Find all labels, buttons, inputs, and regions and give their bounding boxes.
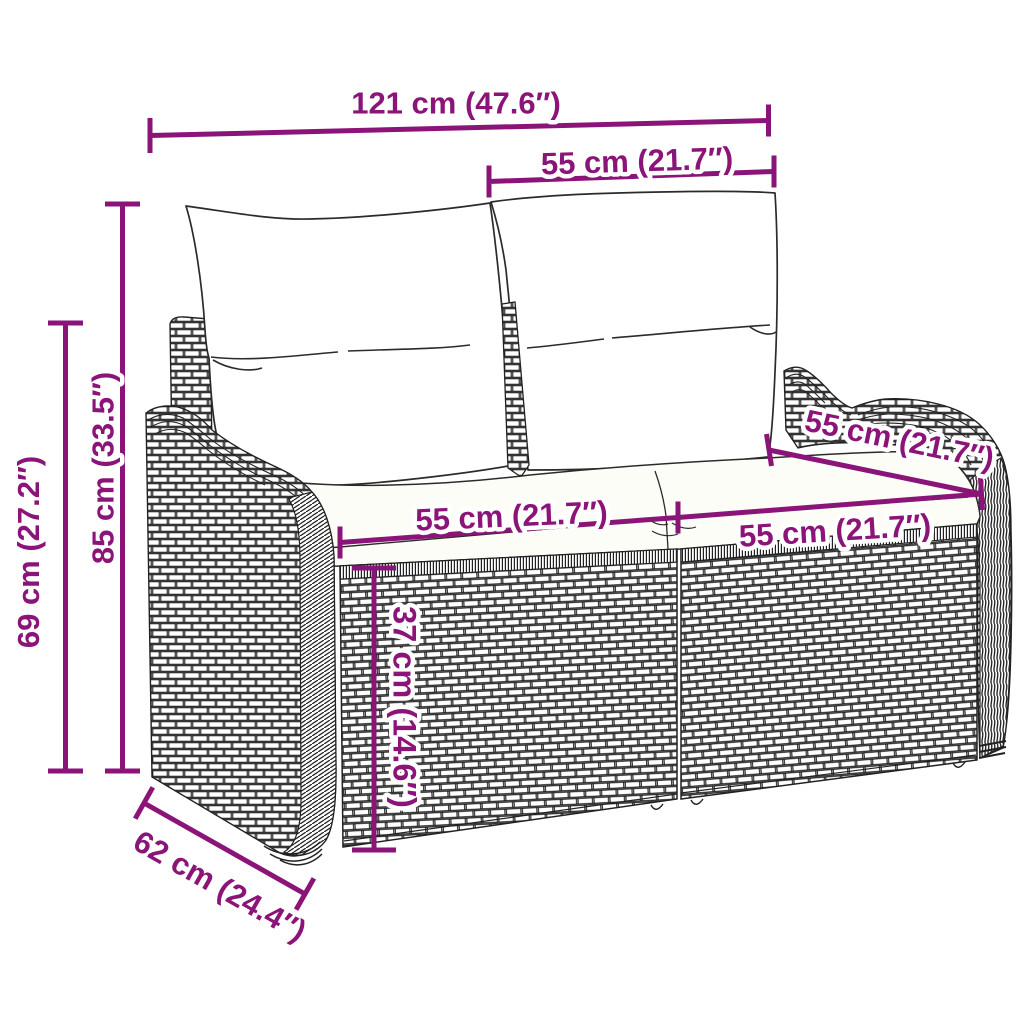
svg-text:85 cm (33.5″): 85 cm (33.5″) <box>86 372 121 564</box>
svg-text:37 cm (14.6″): 37 cm (14.6″) <box>387 606 423 808</box>
svg-text:55 cm (21.7″): 55 cm (21.7″) <box>540 140 733 181</box>
svg-text:121 cm (47.6″): 121 cm (47.6″) <box>351 86 561 121</box>
svg-text:69 cm (27.2″): 69 cm (27.2″) <box>11 456 46 648</box>
